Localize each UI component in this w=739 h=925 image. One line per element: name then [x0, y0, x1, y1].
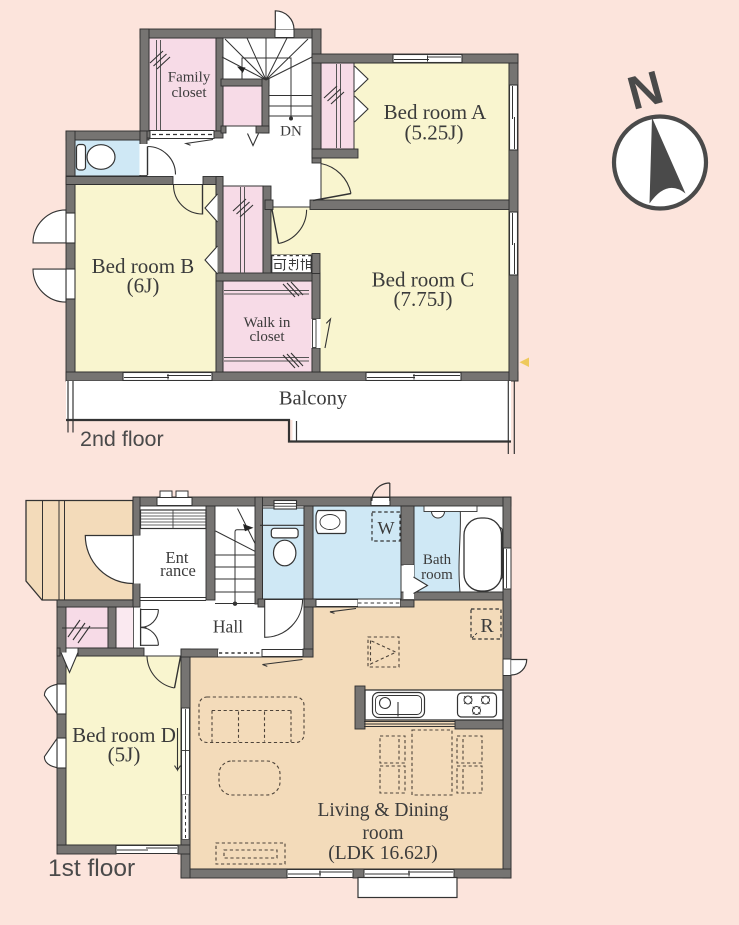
svg-text:DN: DN — [280, 124, 302, 140]
svg-text:Hall: Hall — [213, 617, 243, 637]
svg-text:rance: rance — [160, 561, 196, 580]
svg-text:(6J): (6J) — [127, 274, 160, 298]
svg-text:Balcony: Balcony — [279, 388, 348, 410]
svg-text:(7.75J): (7.75J) — [394, 287, 453, 311]
svg-text:R: R — [480, 615, 494, 637]
svg-text:closet: closet — [172, 85, 208, 101]
svg-text:Living & Dining: Living & Dining — [317, 800, 448, 821]
svg-text:2nd floor: 2nd floor — [80, 427, 164, 451]
svg-text:closet: closet — [250, 329, 286, 345]
svg-text:(5.25J): (5.25J) — [405, 121, 464, 145]
svg-text:room: room — [362, 823, 403, 844]
svg-text:1st floor: 1st floor — [48, 855, 135, 882]
svg-text:(5J): (5J) — [108, 743, 141, 767]
svg-text:W: W — [378, 518, 395, 538]
svg-text:Family: Family — [168, 70, 211, 86]
svg-text:room: room — [421, 567, 453, 583]
svg-text:(LDK 16.62J): (LDK 16.62J) — [328, 843, 437, 864]
svg-text:Bath: Bath — [423, 552, 452, 568]
